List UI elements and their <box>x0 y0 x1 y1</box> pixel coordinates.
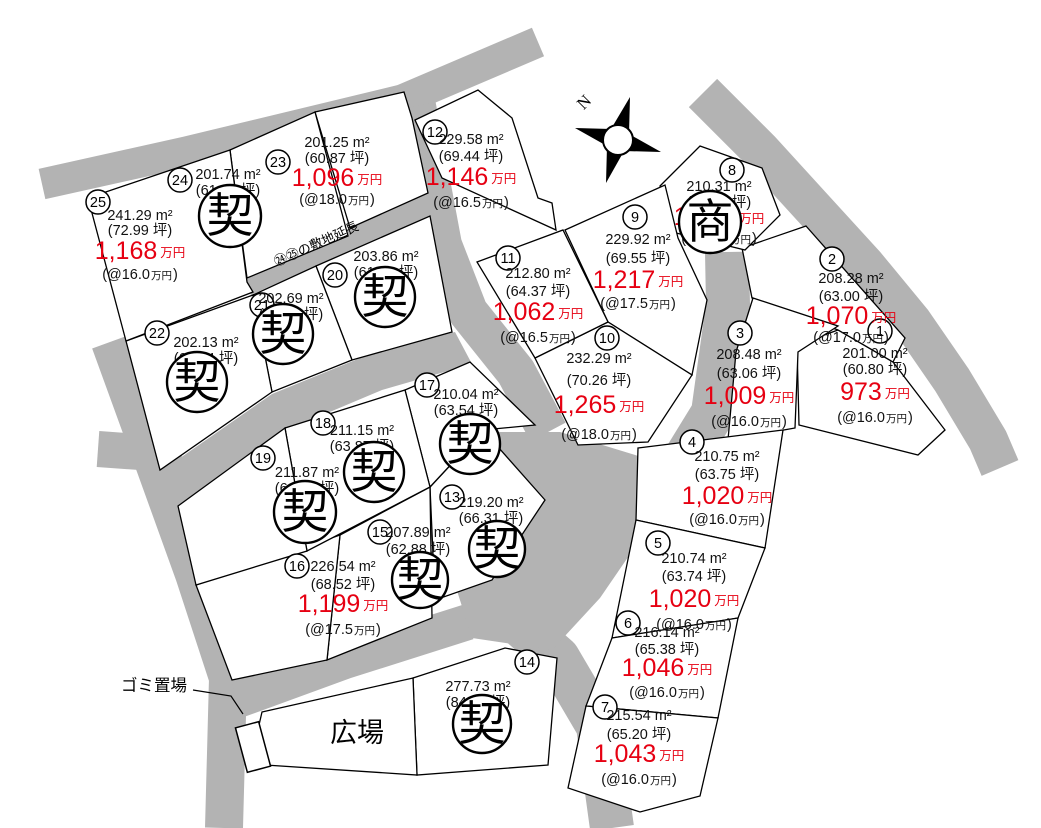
lot-number-20: 20 <box>327 268 343 284</box>
lot-area-19: 211.87 m² <box>275 465 339 481</box>
sold-mark-13: 契 <box>474 522 521 575</box>
lot-area-3: 208.48 m² <box>716 347 781 363</box>
lot-map: 1201.00 m²(60.80 坪)973万円(@16.0万円)2208.28… <box>0 0 1041 828</box>
lot-unit-price-11: (@16.5万円) <box>500 330 576 346</box>
lot-number-22: 22 <box>149 326 165 342</box>
lot-tsubo-9: (69.55 坪) <box>606 250 670 267</box>
lot-unit-price-23: (@18.0万円) <box>299 192 375 208</box>
lot-area-12: 229.58 m² <box>438 132 503 148</box>
sold-mark-17: 契 <box>447 417 494 470</box>
lot-area-4: 210.75 m² <box>694 449 759 465</box>
sold-mark-15: 契 <box>397 553 444 606</box>
lot-unit-price-6: (@16.0万円) <box>629 685 705 701</box>
lot-number-9: 9 <box>631 210 639 226</box>
lot-unit-price-3: (@16.0万円) <box>711 414 787 430</box>
commercial-mark-8: 商 <box>687 195 734 248</box>
sold-mark-19: 契 <box>282 485 329 538</box>
lot-number-25: 25 <box>90 195 106 211</box>
lot-number-11: 11 <box>500 251 515 267</box>
sold-mark-14: 契 <box>459 697 506 750</box>
lot-tsubo-10: (70.26 坪) <box>567 372 631 389</box>
sold-mark-21: 契 <box>260 307 307 360</box>
lot-number-6: 6 <box>624 616 632 632</box>
plaza-label: 広場 <box>330 718 384 748</box>
lot-area-9: 229.92 m² <box>605 232 670 248</box>
compass-north-label: N <box>573 91 595 113</box>
lot-number-19: 19 <box>255 451 271 467</box>
compass: N <box>573 91 661 183</box>
lot-area-2: 208.28 m² <box>818 271 883 287</box>
garbage-station-label: ゴミ置場 <box>121 675 187 695</box>
lot-area-5: 210.74 m² <box>661 551 726 567</box>
lot-number-8: 8 <box>728 163 736 179</box>
lot-unit-price-10: (@18.0万円) <box>561 427 637 443</box>
lot-number-23: 23 <box>270 155 286 171</box>
lot-area-20: 203.86 m² <box>353 249 418 265</box>
map-canvas: 1201.00 m²(60.80 坪)973万円(@16.0万円)2208.28… <box>0 0 1041 828</box>
lot-unit-price-9: (@17.5万円) <box>600 296 676 312</box>
lot-unit-price-4: (@16.0万円) <box>689 512 765 528</box>
lot-area-16: 226.54 m² <box>310 559 375 575</box>
compass-circle <box>603 125 633 155</box>
lot-area-18: 211.15 m² <box>330 423 394 439</box>
lot-unit-price-16: (@17.5万円) <box>305 622 381 638</box>
lot-area-10: 232.29 m² <box>566 351 631 367</box>
lot-number-24: 24 <box>172 173 188 189</box>
lot-unit-price-12: (@16.5万円) <box>433 195 509 211</box>
lot-area-22: 202.13 m² <box>173 335 238 351</box>
lot-area-11: 212.80 m² <box>505 266 570 282</box>
sold-mark-18: 契 <box>351 445 398 498</box>
lot-unit-price-25: (@16.0万円) <box>102 267 178 283</box>
lot-tsubo-1: (60.80 坪) <box>843 361 907 378</box>
lot-number-2: 2 <box>828 252 836 268</box>
lot-tsubo-3: (63.06 坪) <box>717 365 781 382</box>
lot-number-14: 14 <box>519 655 535 671</box>
lot-area-25: 241.29 m² <box>107 208 172 224</box>
lot-number-3: 3 <box>736 326 744 342</box>
lot-tsubo-4: (63.75 坪) <box>695 466 759 483</box>
lot-area-1: 201.00 m² <box>842 346 907 362</box>
lot-number-5: 5 <box>654 536 662 552</box>
lot-unit-price-2: (@17.0万円) <box>813 330 889 346</box>
sold-mark-22: 契 <box>174 355 221 408</box>
lot-number-18: 18 <box>315 416 331 432</box>
lot-area-24: 201.74 m² <box>195 167 260 183</box>
lot-area-15: 207.89 m² <box>385 525 450 541</box>
lot-area-17: 210.04 m² <box>433 387 498 403</box>
lot-area-6: 216.14 m² <box>634 625 699 641</box>
lot-number-10: 10 <box>599 331 615 347</box>
lot-unit-price-1: (@16.0万円) <box>837 410 913 426</box>
lot-unit-price-7: (@16.0万円) <box>601 772 677 788</box>
lot-area-14: 277.73 m² <box>445 679 510 695</box>
lot-number-16: 16 <box>289 559 305 575</box>
lot-tsubo-5: (63.74 坪) <box>662 568 726 585</box>
lot-area-7: 215.54 m² <box>606 708 671 724</box>
lot-area-13: 219.20 m² <box>458 495 523 511</box>
sold-mark-24: 契 <box>207 189 254 242</box>
sold-mark-20: 契 <box>362 270 409 323</box>
lot-area-23: 201.25 m² <box>304 135 369 151</box>
